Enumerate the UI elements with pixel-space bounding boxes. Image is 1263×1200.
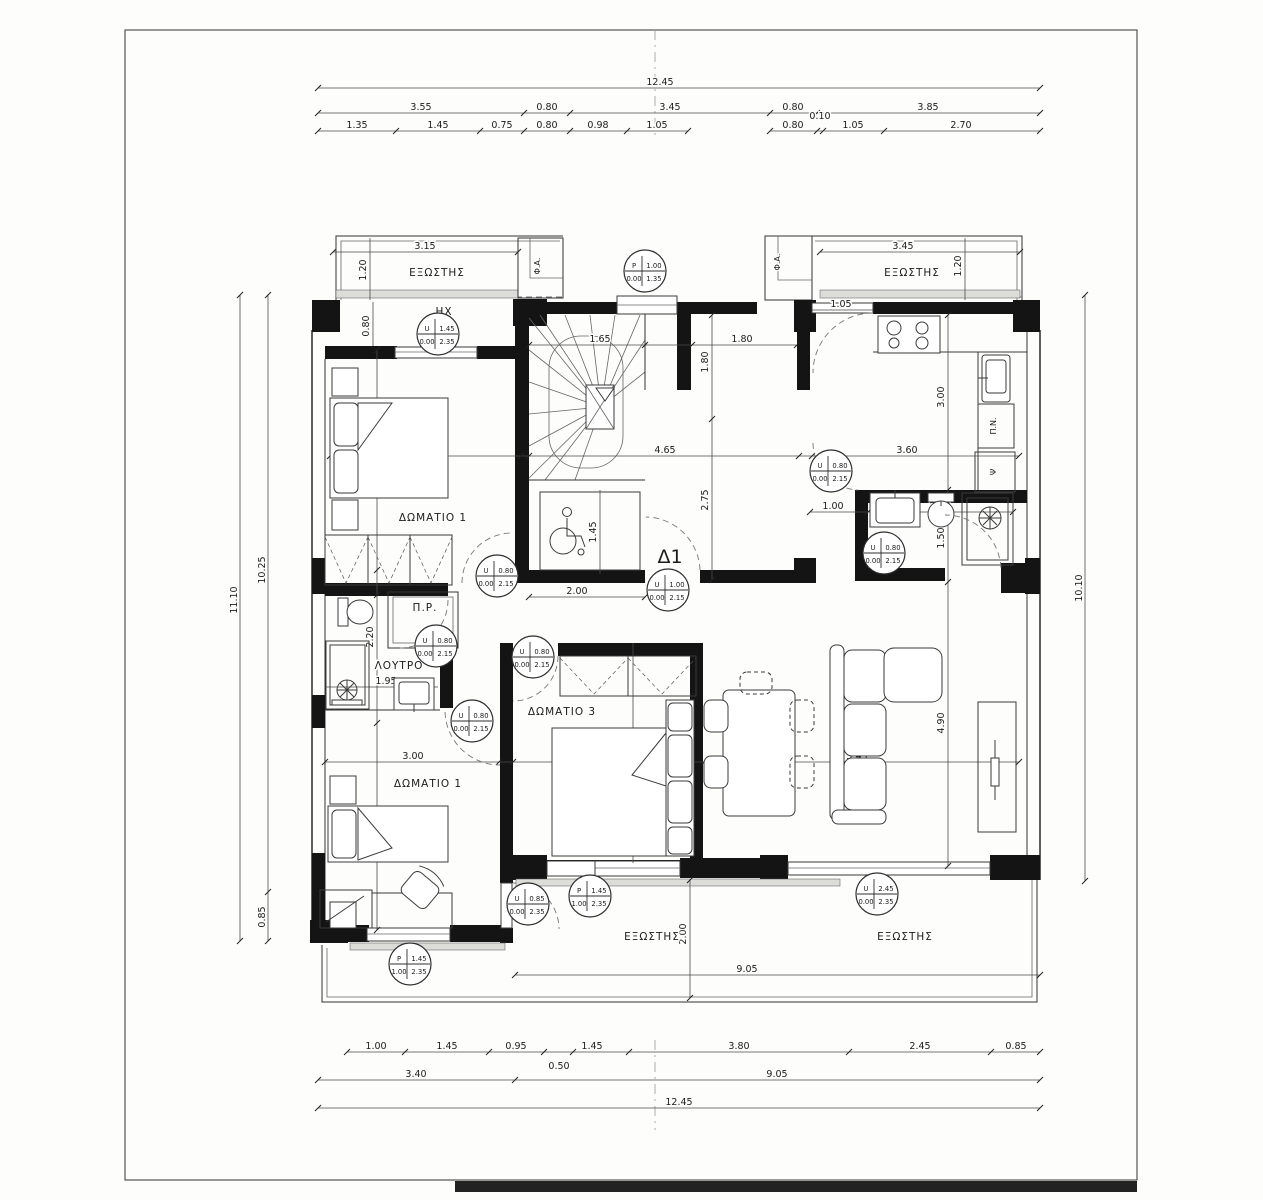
dim: 2.75: [700, 489, 711, 510]
room-label-balcony-tl: ΕΞΩΣΤΗΣ: [409, 267, 465, 279]
toilet-icon: [338, 598, 373, 626]
opening-tag-living-slider: U 2.45 0.00 2.35: [856, 873, 898, 915]
dim: 3.45: [659, 102, 680, 113]
room-label-balcony-bl: ΕΞΩΣΤΗΣ: [624, 931, 680, 943]
tag-width: 0.80: [498, 567, 513, 575]
dim: 1.65: [589, 334, 610, 345]
opening-tag-stair-window: P 1.00 0.00 1.35: [624, 250, 666, 292]
tag-sill: 0.00: [419, 338, 434, 346]
room-label-bedroom3: ΔΩΜΑΤΙΟ 3: [528, 706, 596, 718]
tag-letter: U: [655, 581, 660, 589]
apartment-label: Δ1: [657, 546, 682, 568]
floor-plan-sheet: 12.45 3.55 0.80 3.45 0.80 3.85 1.35 1.45…: [0, 0, 1263, 1200]
dim: 11.10: [229, 586, 240, 613]
dimension-left: 11.10 10.25 0.85: [229, 292, 271, 944]
bed: [328, 806, 448, 862]
dim: 10.25: [257, 556, 268, 583]
dim: 9.05: [736, 964, 757, 975]
nightstand: [332, 500, 358, 530]
tag-sill: 1.00: [391, 968, 406, 976]
tag-height: 2.15: [473, 725, 488, 733]
shower-icon: [326, 641, 369, 709]
sofa: [830, 645, 942, 824]
sofa-chaise: [884, 648, 942, 702]
dim: 0.75: [491, 120, 512, 131]
tag-letter: U: [818, 462, 823, 470]
washbasin-icon: [394, 678, 434, 712]
tag-letter: P: [577, 887, 581, 895]
tag-height: 2.15: [437, 650, 452, 658]
tag-sill: 0.00: [417, 650, 432, 658]
dim: 0.80: [536, 120, 557, 131]
room-label-bathroom: ΛΟΥΤΡΟ: [375, 660, 424, 672]
dim: 0.95: [505, 1041, 526, 1052]
tag-sill: 0.00: [478, 580, 493, 588]
room-label-bedroom2: ΔΩΜΑΤΙΟ 1: [394, 778, 462, 790]
dim: 0.80: [536, 102, 557, 113]
tag-width: 1.00: [669, 581, 684, 589]
dim-top-total: 12.45: [646, 77, 673, 88]
chair: [704, 700, 728, 732]
tag-sill: 0.00: [453, 725, 468, 733]
dim: 3.60: [896, 445, 917, 456]
dim-sub: 0.50: [548, 1061, 569, 1072]
tag-height: 2.35: [411, 968, 426, 976]
tag-width: 0.85: [529, 895, 544, 903]
tag-width: 1.45: [411, 955, 426, 963]
dim: 0.98: [587, 120, 608, 131]
tag-letter: U: [484, 567, 489, 575]
dim: 0.85: [257, 906, 268, 927]
dim: 2.70: [950, 120, 971, 131]
dim: 0.85: [1005, 1041, 1026, 1052]
tag-letter: U: [864, 885, 869, 893]
bedroom2-furniture: [320, 776, 452, 928]
dim: 1.45: [581, 1041, 602, 1052]
wardrobe: [560, 656, 696, 696]
dim: 3.55: [410, 102, 431, 113]
dim: 3.80: [728, 1041, 749, 1052]
dim: 1.45: [427, 120, 448, 131]
dim-bottom-total: 12.45: [665, 1097, 692, 1108]
bed-side: [666, 700, 694, 856]
tag-height: 2.15: [885, 557, 900, 565]
bed: [552, 728, 668, 856]
dim: 0.10: [809, 111, 830, 122]
tag-width: 1.00: [646, 262, 661, 270]
dim: 2.20: [365, 626, 376, 647]
opening-tag-hx-door: U 1.45 0.00 2.35: [417, 313, 459, 355]
sheet-border: [125, 30, 1137, 1192]
opening-tag-bathroom-door: U 0.80 0.00 2.15: [415, 625, 457, 667]
tag-width: 0.80: [437, 637, 452, 645]
tag-letter: U: [425, 325, 430, 333]
dim: 1.05: [646, 120, 667, 131]
opening-tag-bath-door: U 0.80 0.00 2.15: [863, 532, 905, 574]
dimension-chain-top: 12.45 3.55 0.80 3.45 0.80 3.85 1.35 1.45…: [315, 77, 1043, 134]
bedroom3-furniture: [552, 656, 696, 856]
balcony-top-right: Φ.Α. 3.45 1.20 ΕΞΩΣΤΗΣ: [765, 236, 1023, 300]
tag-sill: 0.00: [812, 475, 827, 483]
tag-height: 2.35: [591, 900, 606, 908]
tag-letter: P: [632, 262, 636, 270]
tag-width: 0.80: [832, 462, 847, 470]
laundry-label: Π.Ν.: [989, 417, 998, 434]
kitchen: Π.Ν. Ψ: [873, 316, 1027, 492]
dim: 0.80: [782, 102, 803, 113]
dim: 1.45: [436, 1041, 457, 1052]
tag-letter: U: [520, 648, 525, 656]
dim: 0.80: [361, 315, 372, 336]
room-label-bedroom1: ΔΩΜΑΤΙΟ 1: [399, 512, 467, 524]
tag-sill: 1.00: [571, 900, 586, 908]
dining-set: [704, 672, 814, 816]
tag-height: 2.15: [498, 580, 513, 588]
shaft-label: Φ.Α.: [773, 254, 782, 271]
room-label-closet: Π.Ρ.: [413, 602, 438, 614]
dim: 1.80: [731, 334, 752, 345]
dimension-chain-bottom: 1.00 1.45 0.95 1.45 3.80 2.45 0.85 0.50 …: [315, 1041, 1043, 1111]
wardrobe: [325, 535, 452, 585]
tag-letter: P: [397, 955, 401, 963]
dim: 3.00: [936, 386, 947, 407]
kitchen-sink-icon: [978, 355, 1010, 402]
opening-tag-balcony-door-left: U 0.85 0.00 2.35: [507, 883, 549, 925]
dim: 3.40: [405, 1069, 426, 1080]
tag-height: 2.35: [878, 898, 893, 906]
tag-width: 1.45: [591, 887, 606, 895]
dim: 4.65: [654, 445, 675, 456]
tag-sill: 0.00: [865, 557, 880, 565]
dimension-right: 10.10: [1074, 292, 1088, 884]
tag-letter: U: [515, 895, 520, 903]
opening-tag-kitchen-door: U 0.80 0.00 2.15: [810, 450, 852, 492]
fridge-label: Ψ: [989, 469, 998, 475]
floor-plan-drawing: 12.45 3.55 0.80 3.45 0.80 3.85 1.35 1.45…: [0, 0, 1263, 1200]
shaft-label: Φ.Α.: [533, 258, 542, 275]
tv-unit: [978, 702, 1016, 832]
tag-sill: 0.00: [626, 275, 641, 283]
dim: 1.35: [346, 120, 367, 131]
dim: 3.45: [892, 241, 913, 252]
nightstand: [330, 776, 356, 804]
tag-height: 1.35: [646, 275, 661, 283]
washbasin-icon: [870, 490, 920, 527]
dim: 1.20: [953, 255, 964, 276]
dim: 3.00: [402, 751, 423, 762]
dim: 4.90: [936, 712, 947, 733]
tag-sill: 0.00: [514, 661, 529, 669]
dim: 0.80: [782, 120, 803, 131]
dim: 1.95: [375, 676, 396, 687]
dim: 3.15: [414, 241, 435, 252]
dim: 1.50: [936, 527, 947, 548]
opening-tag-bedroom3-door: U 0.80 0.00 2.15: [512, 636, 554, 678]
tag-letter: U: [459, 712, 464, 720]
nightstand: [332, 368, 358, 396]
dim: 1.45: [588, 521, 599, 542]
dim: 1.00: [822, 501, 843, 512]
opening-tag-entrance-door: U 1.00 0.00 2.15: [647, 569, 689, 611]
tag-height: 2.15: [534, 661, 549, 669]
tag-sill: 0.00: [649, 594, 664, 602]
chair: [704, 756, 728, 788]
tag-sill: 0.00: [858, 898, 873, 906]
dining-table: [723, 690, 795, 816]
dim: 2.00: [566, 586, 587, 597]
toilet-icon: [928, 493, 954, 527]
dim: 3.85: [917, 102, 938, 113]
wheelchair-icon: [550, 508, 585, 556]
dim: 1.80: [700, 351, 711, 372]
tag-width: 1.45: [439, 325, 454, 333]
tag-height: 2.15: [832, 475, 847, 483]
tag-letter: U: [871, 544, 876, 552]
tag-width: 2.45: [878, 885, 893, 893]
tag-height: 2.35: [439, 338, 454, 346]
dim: 1.20: [358, 259, 369, 280]
dim: 1.05: [842, 120, 863, 131]
tag-height: 2.15: [669, 594, 684, 602]
staircase: [529, 314, 645, 480]
dim: 2.45: [909, 1041, 930, 1052]
sheet-bottom-band: [455, 1181, 1137, 1192]
bed: [330, 398, 448, 498]
stove-icon: [878, 316, 940, 353]
tag-width: 0.80: [885, 544, 900, 552]
room-label-balcony-br: ΕΞΩΣΤΗΣ: [877, 931, 933, 943]
tag-width: 0.80: [473, 712, 488, 720]
room-label-balcony-tr: ΕΞΩΣΤΗΣ: [884, 267, 940, 279]
dim: 1.00: [365, 1041, 386, 1052]
opening-tag-bedroom3-window: P 1.45 1.00 2.35: [569, 875, 611, 917]
tag-width: 0.80: [534, 648, 549, 656]
bedroom1-furniture: [325, 368, 452, 585]
opening-tag-bedroom1-door: U 0.80 0.00 2.15: [476, 555, 518, 597]
tag-letter: U: [423, 637, 428, 645]
opening-tag-bedroom2-window: P 1.45 1.00 2.35: [389, 943, 431, 985]
shower-icon: [962, 493, 1013, 565]
dim: 1.05: [830, 299, 851, 310]
tag-height: 2.35: [529, 908, 544, 916]
chair: [399, 863, 447, 911]
tag-sill: 0.00: [509, 908, 524, 916]
opening-tag-bedroom2-door: U 0.80 0.00 2.15: [451, 700, 493, 742]
nightstand: [330, 902, 356, 928]
dim: 9.05: [766, 1069, 787, 1080]
dim: 10.10: [1074, 574, 1085, 601]
